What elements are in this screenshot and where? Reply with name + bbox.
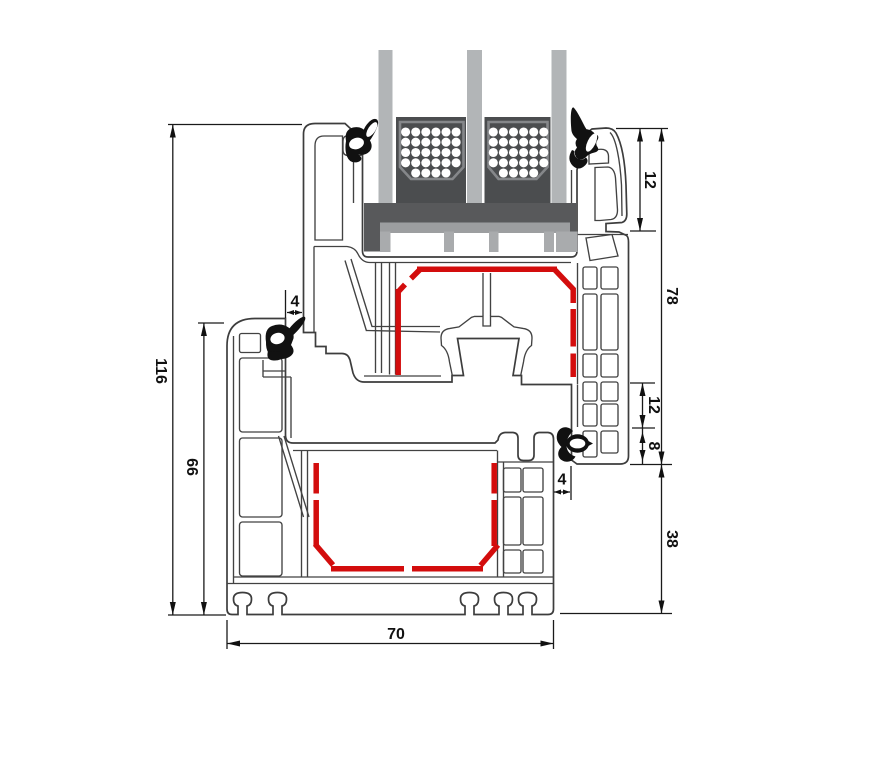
svg-text:116: 116: [152, 358, 169, 384]
svg-text:38: 38: [663, 530, 680, 548]
svg-text:4: 4: [291, 294, 300, 311]
svg-text:70: 70: [387, 626, 405, 643]
svg-text:66: 66: [183, 458, 200, 476]
svg-text:8: 8: [645, 442, 662, 451]
svg-text:12: 12: [641, 171, 658, 189]
svg-text:78: 78: [663, 287, 680, 305]
svg-text:4: 4: [558, 472, 567, 489]
svg-text:12: 12: [645, 396, 662, 414]
